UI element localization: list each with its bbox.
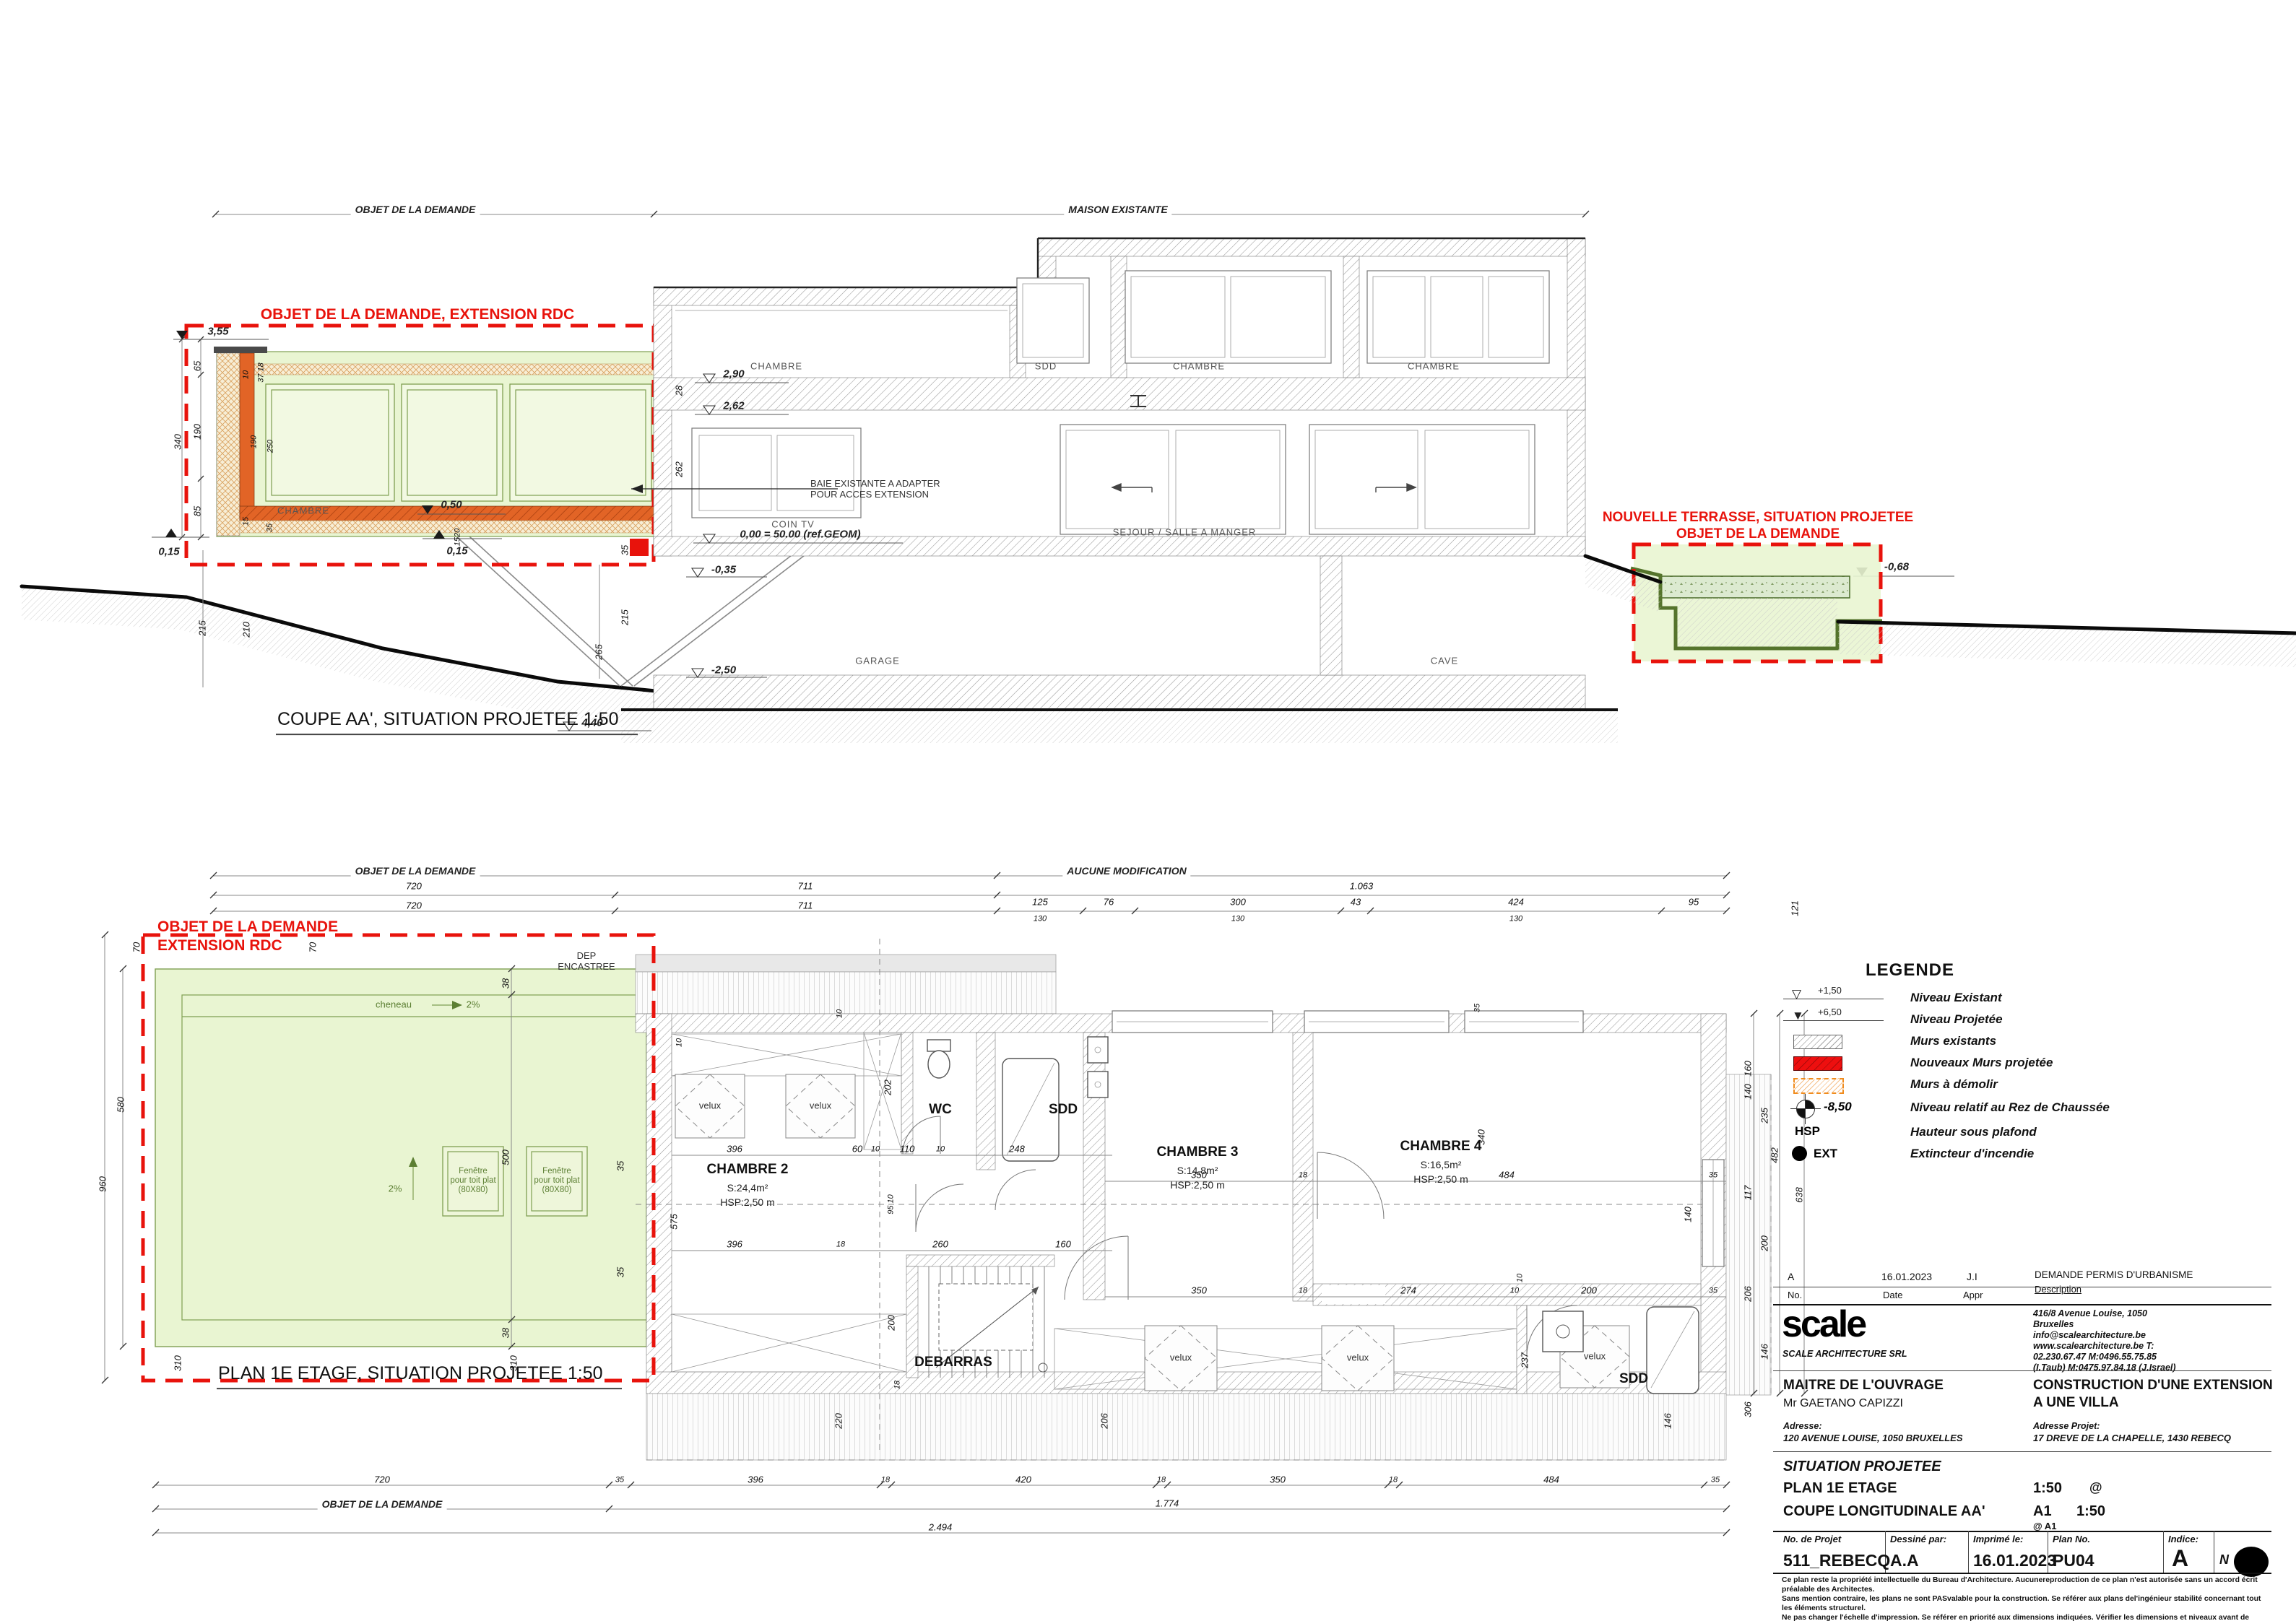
legend-item-niveau-relatif: -8,50 Niveau relatif au Rez de Chaussée: [1773, 1099, 2235, 1118]
firm-logo: scale: [1782, 1305, 1865, 1343]
level-label: 3,55: [207, 325, 228, 337]
plan-label: 35: [616, 1267, 627, 1277]
room-label: CHAMBRE 2: [707, 1162, 789, 1178]
plan-label: 35: [1473, 1004, 1483, 1012]
hsp-icon: HSP: [1773, 1124, 1899, 1142]
plan-label: S:24,4m²: [727, 1182, 768, 1194]
plan-label: S:16,5m²: [1421, 1159, 1462, 1170]
plan-label: 2%: [467, 1000, 480, 1011]
level-projected-icon: ▼+6,50: [1773, 1011, 1899, 1030]
plan-label: 130: [1509, 915, 1522, 924]
plan-label: 424: [1508, 898, 1524, 908]
plan-label: 200: [1581, 1286, 1597, 1297]
header-no: No.: [1788, 1290, 1802, 1300]
header-printed-on: Imprimé le:: [1973, 1534, 2023, 1544]
plan-label: 720: [406, 882, 422, 892]
level-existing-icon: ▽+1,50: [1773, 989, 1899, 1008]
client-name: Mr GAETANO CAPIZZI: [1783, 1397, 1903, 1410]
dim-span-maison: MAISON EXISTANTE: [1064, 204, 1171, 215]
plan-extension-roof: [155, 965, 646, 1350]
section-label: 35: [266, 523, 275, 532]
plan-label: 60: [852, 1144, 862, 1155]
plan-label: 220: [834, 1413, 845, 1429]
section-label: 250: [267, 440, 276, 453]
firm-name: SCALE ARCHITECTURE SRL: [1782, 1349, 1907, 1359]
room-label: SDD: [1035, 362, 1057, 373]
room-label: DEBARRAS: [914, 1355, 992, 1370]
room-label: CAVE: [1431, 656, 1458, 667]
legend-item-nouveaux-murs: Nouveaux Murs projetée: [1773, 1054, 2235, 1074]
legend-item-murs-existants: Murs existants: [1773, 1033, 2235, 1052]
drawing-format-2: A1: [2033, 1503, 2052, 1520]
plan-label: 580: [116, 1097, 127, 1113]
plan-label: 720: [374, 1475, 390, 1486]
plan-label: velux: [810, 1101, 831, 1112]
drawing-name-1: PLAN 1E ETAGE: [1783, 1480, 1897, 1497]
plan-label: velux: [1347, 1353, 1369, 1364]
plan-label: 160: [1055, 1240, 1071, 1251]
client-address: 120 AVENUE LOUISE, 1050 BRUXELLES: [1783, 1433, 1963, 1443]
extension-callout: OBJET DE LA DEMANDE: [157, 918, 338, 936]
terrace-callout: NOUVELLE TERRASSE, SITUATION PROJETEE: [1603, 510, 1913, 526]
new-wall-swatch-icon: [1773, 1054, 1899, 1073]
header-plan-no: Plan No.: [2053, 1534, 2090, 1544]
plan-drawing: [102, 872, 1808, 1536]
legend-title: LEGENDE: [1866, 960, 1954, 981]
header-drawn-by: Dessiné par:: [1890, 1534, 1946, 1544]
plan-label: 350: [1191, 1170, 1207, 1181]
project-address-label: Adresse Projet:: [2033, 1421, 2100, 1431]
level-label: 0,15: [158, 545, 179, 557]
plan-label: 10: [1516, 1274, 1525, 1282]
level-label: 0,15: [446, 544, 467, 557]
plan-label: 140: [1684, 1207, 1694, 1222]
plan-label: 638: [1795, 1187, 1806, 1203]
plan-label: 310: [173, 1355, 184, 1371]
plan-label: 720: [406, 901, 422, 912]
project-number: 511_REBECQ: [1783, 1551, 1890, 1570]
plan-label: 110: [900, 1144, 915, 1155]
plan-title: PLAN 1E ETAGE, SITUATION PROJETEE 1:50: [217, 1363, 622, 1389]
plan-label: HSP:2,50 m: [1413, 1173, 1468, 1185]
plan-label: 396: [748, 1475, 763, 1486]
plan-label: 2%: [389, 1184, 402, 1195]
drawing-status: SITUATION PROJETEE: [1783, 1459, 1941, 1475]
plan-label: 125: [1032, 898, 1048, 908]
drawn-by: A.A: [1890, 1551, 1919, 1570]
room-label: GARAGE: [855, 656, 900, 667]
legend-item-hsp: HSP Hauteur sous plafond: [1773, 1124, 2235, 1143]
level-label: 0,00 = 50.00 (ref.GEOM): [740, 528, 860, 540]
plan-label: 18: [881, 1476, 890, 1485]
plan-label: 35: [1711, 1476, 1720, 1485]
plan-label: 18: [1389, 1476, 1398, 1485]
fire-extinguisher-icon: EXT: [1773, 1145, 1899, 1164]
extension-callout: OBJET DE LA DEMANDE, EXTENSION RDC: [261, 306, 574, 323]
plan-label: 35: [616, 1161, 627, 1171]
plan-label: 260: [932, 1240, 948, 1251]
project-title-2: A UNE VILLA: [2033, 1395, 2119, 1411]
header-indice: Indice:: [2168, 1534, 2198, 1544]
drawing-name-2: COUPE LONGITUDINALE AA': [1783, 1503, 1985, 1520]
plan-label: 484: [1499, 1170, 1515, 1181]
plan-label: 350: [1191, 1286, 1207, 1297]
plan-label: 960: [98, 1176, 109, 1192]
drawing-at-1: @: [2089, 1480, 2102, 1495]
plan-label: 235: [1760, 1108, 1771, 1124]
room-label: SDD: [1619, 1371, 1648, 1387]
plan-label: 130: [1034, 915, 1047, 924]
plan-label: 10: [871, 1145, 880, 1155]
level-label: -2,50: [711, 664, 736, 676]
plan-label: 70: [132, 942, 143, 952]
room-label: SEJOUR / SALLE A MANGER: [1113, 528, 1257, 539]
plan-label: 95: [1689, 898, 1699, 908]
printed-date: 16.01.2023: [1973, 1551, 2056, 1570]
legend-item-extincteur: EXT Extincteur d'incendie: [1773, 1145, 2235, 1165]
room-label: SDD: [1049, 1102, 1078, 1118]
plan-label: 38: [501, 978, 512, 988]
room-label: CHAMBRE: [1408, 362, 1460, 373]
project-title-1: CONSTRUCTION D'UNE EXTENSION: [2033, 1378, 2273, 1394]
plan-label: velux: [1584, 1352, 1606, 1363]
skylight-label: Fenêtre pour toit plat (80X80): [534, 1167, 579, 1196]
existing-wall-swatch-icon: [1773, 1033, 1899, 1051]
section-label: 1520: [454, 529, 463, 546]
baie-note: BAIE EXISTANTE A ADAPTER POUR ACCES EXTE…: [810, 479, 940, 500]
plan-label: 396: [727, 1144, 742, 1155]
level-label: -0,35: [711, 563, 736, 575]
plan-label: 350: [1270, 1475, 1286, 1486]
plan-label: 146: [1760, 1344, 1771, 1360]
plan-label: 18: [1157, 1476, 1166, 1485]
dim-span-objet: OBJET DE LA DEMANDE: [351, 204, 480, 215]
project-address: 17 DREVE DE LA CHAPELLE, 1430 REBECQ: [2033, 1433, 2231, 1443]
plan-label: 35: [1709, 1171, 1717, 1181]
plan-label: 121: [1790, 900, 1801, 916]
plan-label: 1.774: [1156, 1499, 1179, 1510]
section-label: 190: [250, 435, 259, 448]
plan-label: 70: [308, 942, 319, 952]
plan-label: 130: [1231, 915, 1244, 924]
plan-label: velux: [699, 1101, 721, 1112]
plan-label: 117: [1743, 1186, 1754, 1201]
plan-label: 340: [1477, 1129, 1488, 1145]
level-label: 0,50: [441, 498, 462, 510]
plan-label: 575: [670, 1214, 680, 1230]
plan-label: 420: [1015, 1475, 1031, 1486]
plan-label: 2.494: [929, 1523, 953, 1534]
title-block: A 16.01.2023 J.I DEMANDE PERMIS D'URBANI…: [1773, 1265, 2271, 1620]
section-label: 215: [198, 620, 209, 636]
revision-description: DEMANDE PERMIS D'URBANISME: [2035, 1269, 2193, 1280]
level-label: 2,90: [723, 368, 744, 380]
level-label: -0,68: [1884, 560, 1909, 573]
plan-label: 274: [1400, 1286, 1416, 1297]
room-label: CHAMBRE 3: [1157, 1144, 1239, 1160]
plan-label: 396: [727, 1240, 742, 1251]
revision-index: A: [1788, 1271, 1794, 1282]
skylight-label: Fenêtre pour toit plat (80X80): [450, 1167, 495, 1196]
section-label: 15: [242, 517, 251, 526]
plan-label: 140: [1743, 1084, 1754, 1100]
section-label: 28: [675, 386, 685, 396]
plan-label: 237: [1520, 1352, 1531, 1368]
drawing-scale-1: 1:50: [2033, 1480, 2062, 1497]
plan-label: 10: [836, 1009, 845, 1018]
plan-label: 306: [1743, 1401, 1754, 1417]
plan-label: 711: [798, 901, 813, 912]
section-label: 65: [193, 361, 204, 371]
plan-label: 202: [883, 1079, 894, 1095]
plan-label: 10: [675, 1038, 685, 1047]
room-label: CHAMBRE: [750, 362, 802, 373]
plan-label: 300: [1230, 898, 1246, 908]
plan-label: 1.063: [1350, 882, 1374, 892]
header-appr: Appr: [1963, 1290, 1983, 1300]
plan-label: HSP:2,50 m: [720, 1196, 774, 1208]
plan-label: 38: [501, 1328, 512, 1338]
plan-label: 18: [893, 1381, 903, 1389]
room-label: CHAMBRE: [1173, 362, 1225, 373]
plan-label: 76: [1104, 898, 1114, 908]
demolish-wall-swatch-icon: [1773, 1076, 1899, 1095]
extension-callout: EXTENSION RDC: [157, 937, 282, 955]
header-description: Description: [2035, 1284, 2081, 1295]
plan-label: 711: [798, 882, 813, 892]
legend-item-murs-demolir: Murs à démolir: [1773, 1076, 2235, 1095]
room-label: CHAMBRE: [277, 506, 329, 517]
disclaimer-text: Ce plan reste la propriété intellectuell…: [1782, 1576, 2267, 1621]
plan-label: 18: [1299, 1171, 1307, 1181]
plan-label: 146: [1663, 1413, 1674, 1429]
plan-label: 10: [936, 1145, 945, 1155]
client-address-label: Adresse:: [1783, 1421, 1822, 1431]
plan-label: 484: [1543, 1475, 1559, 1486]
section-label: 340: [173, 434, 184, 450]
revision-approver: J.I: [1967, 1271, 1977, 1282]
legend: LEGENDE ▽+1,50 Niveau Existant ▼+6,50 Ni…: [1773, 955, 2235, 1171]
plan-house: [636, 939, 1771, 1460]
room-label: WC: [929, 1102, 952, 1118]
terrace-callout: OBJET DE LA DEMANDE: [1676, 526, 1840, 542]
plan-label: 206: [1100, 1413, 1111, 1429]
section-label: 37 18: [257, 362, 267, 383]
velux-windows: [675, 1074, 1629, 1391]
plan-label: 248: [1009, 1144, 1025, 1155]
client-label: MAITRE DE L'OUVRAGE: [1783, 1378, 1944, 1394]
drawing-sheet: .w{fill:url(#ph);stroke:#777;stroke-widt…: [0, 0, 2296, 1621]
section-drawing: [22, 211, 2296, 743]
room-label: CHAMBRE 4: [1400, 1139, 1482, 1155]
plan-label: 160: [1743, 1061, 1754, 1077]
drawing-scale-2: 1:50: [2076, 1503, 2105, 1520]
relative-level-icon: -8,50: [1773, 1099, 1899, 1118]
legend-item-niveau-projetee: ▼+6,50 Niveau Projetée: [1773, 1011, 2235, 1030]
header-date: Date: [1883, 1290, 1902, 1300]
indice-value: A: [2172, 1545, 2188, 1572]
dim-span-objet: OBJET DE LA DEMANDE: [318, 1498, 447, 1510]
plan-label: 43: [1351, 898, 1361, 908]
plan-label: 18: [1299, 1287, 1307, 1296]
north-letter: N: [2219, 1552, 2229, 1568]
plan-label: 95 10: [887, 1194, 896, 1214]
header-project-no: No. de Projet: [1783, 1534, 1841, 1544]
section-label: 262: [675, 461, 685, 477]
section-label: 85: [193, 506, 204, 516]
plan-label: velux: [1170, 1353, 1192, 1364]
section-label: 265: [594, 644, 605, 660]
section-title: COUPE AA', SITUATION PROJETEE 1:50: [276, 709, 638, 735]
dim-span-aucune: AUCUNE MODIFICATION: [1062, 865, 1190, 877]
plan-label: 200: [887, 1315, 898, 1331]
plan-label: 18: [836, 1240, 845, 1250]
dim-span-objet: OBJET DE LA DEMANDE: [351, 865, 480, 877]
plan-label: 35: [1709, 1287, 1717, 1296]
format-note: @ A1: [2033, 1521, 2056, 1531]
cheneau-label: cheneau: [376, 1000, 412, 1011]
section-label: 10: [242, 370, 251, 379]
level-label: 2,62: [723, 399, 744, 412]
section-label: 215: [620, 609, 631, 625]
firm-address: 416/8 Avenue Louise, 1050 Bruxelles info…: [2033, 1308, 2268, 1373]
plan-label: 10: [1510, 1287, 1519, 1296]
revision-date: 16.01.2023: [1881, 1271, 1932, 1282]
plan-label: 35: [615, 1476, 624, 1485]
legend-item-niveau-existant: ▽+1,50 Niveau Existant: [1773, 989, 2235, 1009]
section-label: 190: [193, 424, 204, 440]
plan-number: PU04: [2053, 1551, 2094, 1570]
plan-label: 206: [1743, 1286, 1754, 1302]
section-label: 210: [242, 622, 253, 638]
new-wall-mark: [630, 539, 649, 556]
plan-label: 500: [501, 1150, 512, 1165]
dep-note: DEP ENCASTREE: [558, 951, 615, 973]
section-house: [621, 238, 1618, 743]
section-label: 35: [620, 545, 631, 555]
plan-label: 200: [1760, 1235, 1771, 1251]
